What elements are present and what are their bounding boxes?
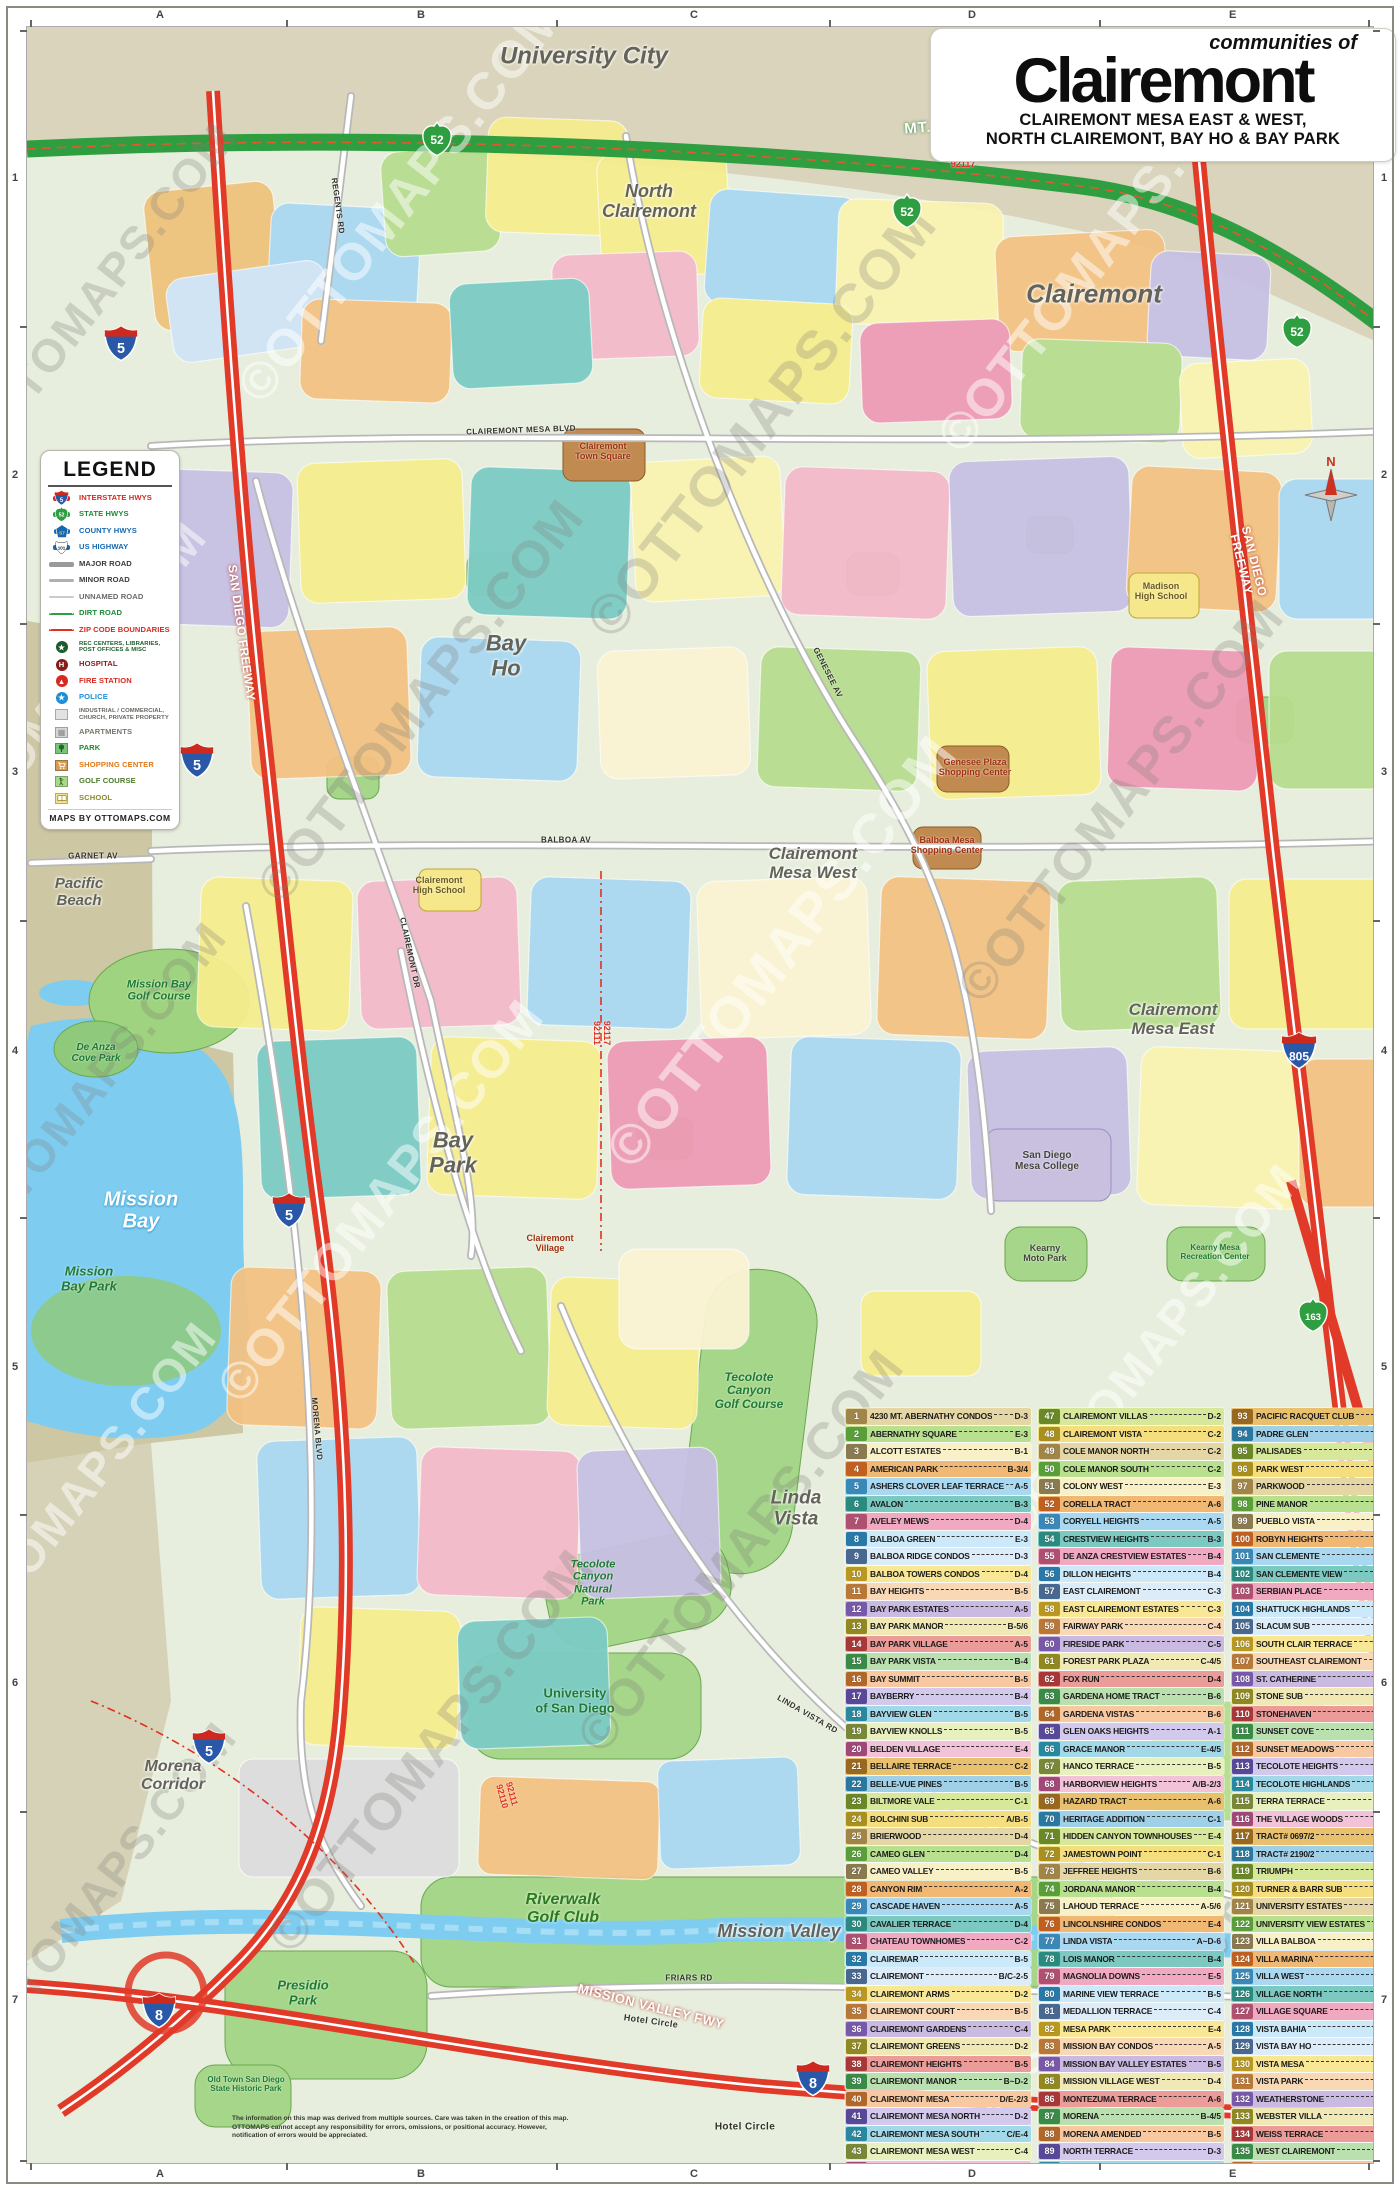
index-entry-number: 2 [846, 1427, 867, 1442]
index-entry-name: FOX RUN [1063, 1674, 1099, 1684]
index-entry-number: 22 [846, 1777, 867, 1792]
grid-number-right: 5 [1381, 1361, 1387, 1373]
index-entry-number: 110 [1232, 1707, 1253, 1722]
index-entry-number: 34 [846, 1987, 867, 2002]
grid-tick [1373, 1811, 1380, 1813]
index-row: 96PARK WESTB-1 [1231, 1461, 1374, 1478]
index-entry-name: CLAIREMONT MESA SOUTH [870, 2129, 979, 2139]
grid-letter-bottom: B [417, 2168, 425, 2180]
index-entry-name: CLAIREMONT MESA NORTH [870, 2111, 980, 2121]
index-leader-dots [952, 1991, 1013, 1992]
index-entry-number: 48 [1039, 1427, 1060, 1442]
index-entry-name: MISSION BAY VALLEY ESTATES [1063, 2059, 1187, 2069]
index-entry-gridref: A/B-5 [1006, 1814, 1028, 1824]
index-row: 62FOX RUND-4 [1038, 1671, 1224, 1688]
grid-number-right: 6 [1381, 1677, 1387, 1689]
index-leader-dots [1325, 2131, 1374, 2132]
index-entry-number: 133 [1232, 2109, 1253, 2124]
index-row: 22BELLE-VUE PINESB-5 [845, 1776, 1031, 1793]
index-row: 117TRACT# 0697/2B-5 [1231, 1828, 1374, 1845]
index-entry-number: 107 [1232, 1654, 1253, 1669]
index-entry-name: GLEN OAKS HEIGHTS [1063, 1726, 1149, 1736]
index-entry-name: CANYON RIM [870, 1884, 922, 1894]
index-leader-dots [923, 1834, 1012, 1835]
index-entry-number: 59 [1039, 1619, 1060, 1634]
grid-tick [1099, 20, 1101, 27]
index-leader-dots [1312, 1624, 1374, 1625]
legend-item-label: APARTMENTS [79, 728, 132, 737]
index-entry-gridref: B-5 [1015, 1674, 1029, 1684]
grid-tick [1373, 920, 1380, 922]
index-row: 101SAN CLEMENTEC-1 [1231, 1548, 1374, 1565]
index-entry-gridref: C-3 [1208, 1604, 1222, 1614]
grid-tick [1368, 2163, 1370, 2170]
index-entry-name: GRACE MANOR [1063, 1744, 1125, 1754]
index-entry-name: CAMEO VALLEY [870, 1866, 934, 1876]
index-row: 76LINCOLNSHIRE CONDOSE-4 [1038, 1916, 1224, 1933]
index-entry-number: 70 [1039, 1812, 1060, 1827]
index-row: 106SOUTH CLAIR TERRACEC-5 [1231, 1636, 1374, 1653]
state-icon: 52 [48, 512, 75, 517]
index-leader-dots [1162, 2079, 1206, 2080]
index-entry-gridref: D-4 [1015, 1849, 1029, 1859]
index-entry-number: 125 [1232, 1969, 1253, 1984]
index-leader-dots [1295, 1869, 1374, 1870]
index-leader-dots [1114, 1939, 1194, 1940]
grid-tick [30, 20, 32, 27]
index-leader-dots [943, 1449, 1013, 1450]
index-leader-dots [968, 2026, 1012, 2027]
index-leader-dots [951, 2096, 997, 2097]
index-entry-gridref: A-6 [1208, 2094, 1222, 2104]
index-row: 132WEATHERSTONEC-4 [1231, 2091, 1374, 2108]
legend-footer: MAPS BY OTTOMAPS.COM [48, 809, 172, 823]
index-entry-name: VISTA BAY HO [1256, 2041, 1311, 2051]
index-entry-name: COLE MANOR SOUTH [1063, 1464, 1149, 1474]
index-leader-dots [1127, 1746, 1199, 1747]
index-entry-gridref: A-5 [1015, 1639, 1029, 1649]
index-entry-name: PADRE GLEN [1256, 1429, 1308, 1439]
index-row: 99PUEBLO VISTAE-5 [1231, 1513, 1374, 1530]
index-leader-dots [1113, 2026, 1206, 2027]
index-entry-number: 43 [846, 2144, 867, 2159]
index-leader-dots [1306, 1466, 1374, 1467]
index-leader-dots [1315, 1956, 1374, 1957]
index-entry-number: 60 [1039, 1637, 1060, 1652]
legend-item-label: MINOR ROAD [79, 576, 130, 585]
index-row: 111SUNSET COVEC-4 [1231, 1723, 1374, 1740]
index-entry-name: FOREST PARK PLAZA [1063, 1656, 1149, 1666]
index-entry-number: 57 [1039, 1584, 1060, 1599]
index-leader-dots [1324, 1589, 1374, 1590]
index-leader-dots [1322, 1554, 1374, 1555]
index-entry-name: CORYELL HEIGHTS [1063, 1516, 1139, 1526]
index-row: 14230 MT. ABERNATHY CONDOSD-3 [845, 1408, 1031, 1425]
index-leader-dots [1318, 1939, 1374, 1940]
index-leader-dots [1163, 1921, 1206, 1922]
index-entry-number: 29 [846, 1899, 867, 1914]
index-leader-dots [938, 1659, 1013, 1660]
index-entry-gridref: C-4 [1208, 1621, 1222, 1631]
index-entry-name: TECOLOTE HEIGHTS [1256, 1761, 1338, 1771]
index-entry-gridref: B-5 [1208, 2129, 1222, 2139]
index-leader-dots [1143, 1589, 1206, 1590]
index-entry-gridref: A-6 [1208, 1499, 1222, 1509]
index-entry-name: HERITAGE ADDITION [1063, 1814, 1145, 1824]
grid-tick [829, 20, 831, 27]
index-entry-name: JAMESTOWN POINT [1063, 1849, 1142, 1859]
index-leader-dots [967, 1939, 1012, 1940]
index-entry-name: HAZARD TRACT [1063, 1796, 1127, 1806]
index-leader-dots [1136, 1711, 1205, 1712]
index-leader-dots [1117, 1956, 1206, 1957]
index-entry-gridref: E-4 [1208, 2024, 1221, 2034]
svg-text:S7: S7 [59, 530, 65, 535]
index-entry-name: SUNSET COVE [1256, 1726, 1314, 1736]
index-leader-dots [1144, 1851, 1205, 1852]
index-entry-gridref: B-5 [1015, 1726, 1029, 1736]
index-leader-dots [1305, 1694, 1374, 1695]
legend-item-label: INDUSTRIAL / COMMERCIAL, CHURCH, PRIVATE… [79, 708, 169, 722]
index-entry-name: BAYVIEW GLEN [870, 1709, 932, 1719]
index-entry-number: 66 [1039, 1742, 1060, 1757]
legend-item-minor: MINOR ROAD [48, 575, 172, 587]
index-entry-name: TURNER & BARR SUB [1256, 1884, 1342, 1894]
legend-item-label: DIRT ROAD [79, 609, 122, 618]
index-entry-name: SHATTUCK HIGHLANDS [1256, 1604, 1350, 1614]
index-entry-name: VILLAGE NORTH [1256, 1989, 1322, 1999]
legend-item-school: SCHOOL [48, 792, 172, 804]
index-entry-name: NORTH TERRACE [1063, 2146, 1133, 2156]
index-entry-number: 36 [846, 2022, 867, 2037]
index-row: 44CLAIREMONT PARKC-4 [845, 2161, 1031, 2165]
index-entry-gridref: A-5/6 [1201, 1901, 1221, 1911]
index-row: 65GLEN OAKS HEIGHTSA-1 [1038, 1723, 1224, 1740]
index-entry-gridref: D-4 [1015, 1919, 1029, 1929]
index-entry-gridref: D-2 [1208, 1411, 1222, 1421]
index-entry-number: 116 [1232, 1812, 1253, 1827]
index-row: 33CLAIREMONTB/C-2-5 [845, 1968, 1031, 1985]
index-row: 14BAY PARK VILLAGEA-5 [845, 1636, 1031, 1653]
index-entry-name: VILLA WEST [1256, 1971, 1304, 1981]
index-leader-dots [1352, 1781, 1374, 1782]
index-entry-number: 93 [1232, 1409, 1253, 1424]
index-entry-name: WEISS TERRACE [1256, 2129, 1323, 2139]
index-entry-gridref: B-1 [1015, 1446, 1029, 1456]
index-entry-name: LINCOLNSHIRE CONDOS [1063, 1919, 1161, 1929]
index-entry-number: 130 [1232, 2057, 1253, 2072]
index-entry-number: 112 [1232, 1742, 1253, 1757]
index-entry-name: ALCOTT ESTATES [870, 1446, 941, 1456]
index-entry-name: VISTA BAHIA [1256, 2024, 1306, 2034]
index-entry-name: PACIFIC RACQUET CLUB [1256, 1411, 1354, 1421]
index-leader-dots [926, 1974, 997, 1975]
index-entry-number: 55 [1039, 1549, 1060, 1564]
index-row: 122UNIVERSITY VIEW ESTATESE-2 [1231, 1916, 1374, 1933]
index-row: 73JEFFREE HEIGHTSB-6 [1038, 1863, 1224, 1880]
index-entry-number: 5 [846, 1479, 867, 1494]
index-row: 52CORELLA TRACTA-6 [1038, 1496, 1224, 1513]
index-entry-number: 129 [1232, 2039, 1253, 2054]
index-entry-name: PALISADES [1256, 1446, 1302, 1456]
index-entry-number: 39 [846, 2074, 867, 2089]
index-row: 74JORDANA MANORB-4 [1038, 1881, 1224, 1898]
index-entry-name: CLAIREMAR [870, 1954, 918, 1964]
index-entry-gridref: D-2 [1015, 2111, 1029, 2121]
index-entry-number: 52 [1039, 1497, 1060, 1512]
index-row: 5ASHERS CLOVER LEAF TERRACEA-5 [845, 1478, 1031, 1495]
grid-letter-bottom: A [156, 2168, 164, 2180]
index-entry-gridref: B-5 [1208, 2059, 1222, 2069]
index-entry-name: MESA PARK [1063, 2024, 1111, 2034]
legend-item-label: REC CENTERS, LIBRARIES, POST OFFICES & M… [79, 641, 160, 655]
index-row: 71HIDDEN CANYON TOWNHOUSESE-4 [1038, 1828, 1224, 1845]
index-row: 68HARBORVIEW HEIGHTSA/B-2/3 [1038, 1776, 1224, 1793]
index-entry-number: 7 [846, 1514, 867, 1529]
index-entry-number: 33 [846, 1969, 867, 1984]
index-entry-name: GARDENA HOME TRACT [1063, 1691, 1160, 1701]
index-leader-dots [953, 1764, 1012, 1765]
index-leader-dots [1159, 2096, 1206, 2097]
index-row: 37CLAIREMONT GREENSD-2 [845, 2038, 1031, 2055]
index-row: 15BAY PARK VISTAB-4 [845, 1653, 1031, 1670]
index-leader-dots [1326, 2096, 1374, 2097]
grid-number-left: 3 [12, 766, 18, 778]
index-entry-gridref: D/E-2/3 [1000, 2094, 1028, 2104]
index-entry-name: 4230 MT. ABERNATHY CONDOS [870, 1411, 992, 1421]
grid-tick [1373, 623, 1380, 625]
minor-road-icon [48, 579, 75, 582]
grid-number-left: 6 [12, 1677, 18, 1689]
index-entry-name: CLAIREMONT [870, 1971, 924, 1981]
index-entry-gridref: D-4 [1015, 1831, 1029, 1841]
index-entry-number: 104 [1232, 1602, 1253, 1617]
index-row: 11BAY HEIGHTSB-5 [845, 1583, 1031, 1600]
index-entry-name: MORENA AMENDED [1063, 2129, 1141, 2139]
index-row: 125VILLA WESTE-3 [1231, 1968, 1374, 1985]
index-entry-number: 105 [1232, 1619, 1253, 1634]
index-entry-name: MARINE VIEW TERRACE [1063, 1989, 1159, 1999]
index-entry-number: 127 [1232, 2004, 1253, 2019]
index-entry-gridref: D-2 [1015, 2041, 1029, 2051]
index-entry-name: BAYVIEW KNOLLS [870, 1726, 942, 1736]
index-entry-gridref: B-4 [1208, 1569, 1222, 1579]
grid-number-left: 4 [12, 1045, 18, 1057]
index-leader-dots [942, 1904, 1013, 1905]
index-row: 38CLAIREMONT HEIGHTSB-5 [845, 2056, 1031, 2073]
index-entry-gridref: E-4 [1015, 1744, 1028, 1754]
index-leader-dots [1161, 1991, 1206, 1992]
grid-letter-top: B [417, 9, 425, 21]
grid-letter-bottom: D [968, 2168, 976, 2180]
index-entry-number: 118 [1232, 1847, 1253, 1862]
index-entry-number: 56 [1039, 1567, 1060, 1582]
index-row: 93PACIFIC RACQUET CLUBB-3 [1231, 1408, 1374, 1425]
index-leader-dots [1324, 1991, 1374, 1992]
index-row: 84MISSION BAY VALLEY ESTATESB-5 [1038, 2056, 1224, 2073]
grid-tick [556, 20, 558, 27]
index-row: 136WESTERN HILLSB-5 [1231, 2161, 1374, 2165]
index-leader-dots [1367, 1921, 1374, 1922]
industrial-icon [48, 709, 75, 720]
index-entry-name: CLAIREMONT GARDENS [870, 2024, 966, 2034]
index-entry-name: CLAIREMONT MESA WEST [870, 2146, 975, 2156]
grid-letter-top: C [690, 9, 698, 21]
index-row: 77LINDA VISTAA~D-6 [1038, 1933, 1224, 1950]
neighborhood-index-table: 14230 MT. ABERNATHY CONDOSD-32ABERNATHY … [845, 1408, 1374, 2164]
index-leader-dots [1006, 1484, 1013, 1485]
index-entry-name: WEST CLAIREMONT [1256, 2146, 1335, 2156]
us-icon: 101 [48, 545, 75, 550]
index-entry-gridref: B-4 [1015, 1656, 1029, 1666]
index-leader-dots [1129, 1799, 1206, 1800]
index-entry-number: 117 [1232, 1829, 1253, 1844]
index-row: 39CLAIREMONT MANORB~D-2 [845, 2073, 1031, 2090]
index-entry-number: 82 [1039, 2022, 1060, 2037]
index-row: 108ST. CATHERINED-3 [1231, 1671, 1374, 1688]
index-entry-number: 94 [1232, 1427, 1253, 1442]
school-icon [48, 793, 75, 804]
legend-title: LEGEND [48, 458, 172, 487]
index-entry-number: 10 [846, 1567, 867, 1582]
index-row: 105SLACUM SUBB-5 [1231, 1618, 1374, 1635]
index-row: 133WEBSTER VILLAB-4 [1231, 2108, 1374, 2125]
index-entry-name: CLAIREMONT GREENS [870, 2041, 960, 2051]
grid-tick [20, 1811, 27, 1813]
index-entry-number: 122 [1232, 1917, 1253, 1932]
index-row: 2ABERNATHY SQUAREE-3 [845, 1426, 1031, 1443]
index-entry-name: BALBOA TOWERS CONDOS [870, 1569, 980, 1579]
title-block: communities of Clairemont CLAIREMONT MES… [930, 28, 1396, 162]
grid-tick [20, 1217, 27, 1219]
index-entry-name: UNIVERSITY ESTATES [1256, 1901, 1342, 1911]
index-entry-name: COLONY WEST [1063, 1481, 1123, 1491]
grid-number-right: 3 [1381, 766, 1387, 778]
index-entry-gridref: C-4 [1208, 2006, 1222, 2016]
index-row: 113TECOLOTE HEIGHTSC-6 [1231, 1758, 1374, 1775]
index-entry-name: CASCADE HAVEN [870, 1901, 940, 1911]
index-entry-number: 24 [846, 1812, 867, 1827]
index-row: 3ALCOTT ESTATESB-1 [845, 1443, 1031, 1460]
index-entry-number: 84 [1039, 2057, 1060, 2072]
index-entry-name: PARKWOOD [1256, 1481, 1305, 1491]
index-row: 42CLAIREMONT MESA SOUTHC/E-4 [845, 2126, 1031, 2143]
index-row: 50COLE MANOR SOUTHC-2 [1038, 1461, 1224, 1478]
index-row: 123VILLA BALBOAE-3 [1231, 1933, 1374, 1950]
index-entry-name: CORELLA TRACT [1063, 1499, 1131, 1509]
index-row: 85MISSION VILLAGE WESTD-4 [1038, 2073, 1224, 2090]
index-entry-gridref: E-4 [1208, 1831, 1221, 1841]
index-leader-dots [937, 1536, 1013, 1537]
legend-item-label: US HIGHWAY [79, 543, 128, 552]
index-entry-name: ASHERS CLOVER LEAF TERRACE [870, 1481, 1004, 1491]
index-row: 24BOLCHINI SUBA/B-5 [845, 1811, 1031, 1828]
index-entry-gridref: A/B-2/3 [1192, 1779, 1221, 1789]
golf-icon [48, 776, 75, 787]
index-row: 81MEDALLION TERRACEC-4 [1038, 2003, 1224, 2020]
index-leader-dots [920, 1956, 1012, 1957]
index-row: 88MORENA AMENDEDB-5 [1038, 2126, 1224, 2143]
grid-tick [1373, 30, 1380, 32]
index-entry-name: CLAIREMONT COURT [870, 2006, 955, 2016]
index-entry-number: 40 [846, 2092, 867, 2107]
index-entry-name: TRACT# 2190/2 [1256, 1849, 1314, 1859]
index-entry-gridref: D-3 [1015, 1411, 1029, 1421]
index-row: 97PARKWOODC-3 [1231, 1478, 1374, 1495]
map-canvas: N ©OTTOMAPS.COM©OTTOMAPS.COM©OTTOMAPS.CO… [26, 26, 1374, 2164]
index-leader-dots [994, 1414, 1012, 1415]
grid-tick [1373, 1217, 1380, 1219]
index-row: 94PADRE GLENB-4 [1231, 1426, 1374, 1443]
index-entry-name: CLAIREMONT VILLAS [1063, 1411, 1148, 1421]
index-row: 82MESA PARKE-4 [1038, 2021, 1224, 2038]
index-entry-number: 30 [846, 1917, 867, 1932]
index-leader-dots [1133, 1571, 1206, 1572]
index-leader-dots [1317, 1519, 1374, 1520]
shopping-icon [48, 760, 75, 771]
index-entry-number: 98 [1232, 1497, 1253, 1512]
index-row: 121UNIVERSITY ESTATESB-6 [1231, 1898, 1374, 1915]
grid-tick [20, 326, 27, 328]
legend-item-label: ZIP CODE BOUNDARIES [79, 626, 170, 635]
index-entry-number: 47 [1039, 1409, 1060, 1424]
index-entry-gridref: B-5 [1015, 2006, 1029, 2016]
index-leader-dots [981, 2131, 1004, 2132]
index-entry-name: WEATHERSTONE [1256, 2094, 1324, 2104]
index-column: 14230 MT. ABERNATHY CONDOSD-32ABERNATHY … [845, 1408, 1031, 2164]
index-leader-dots [922, 1676, 1012, 1677]
index-entry-gridref: D-3 [1015, 1551, 1029, 1561]
index-leader-dots [1142, 1974, 1206, 1975]
index-leader-dots [1141, 1519, 1205, 1520]
index-row: 47CLAIREMONT VILLASD-2 [1038, 1408, 1224, 1425]
index-entry-gridref: A-5 [1015, 1901, 1029, 1911]
index-entry-name: CRESTVIEW HEIGHTS [1063, 1534, 1149, 1544]
index-entry-gridref: E-4/5 [1201, 1744, 1221, 1754]
legend-item-state: 52 STATE HWYS [48, 509, 172, 521]
index-entry-number: 19 [846, 1724, 867, 1739]
grid-letter-top: E [1229, 9, 1236, 21]
index-entry-number: 124 [1232, 1952, 1253, 1967]
hospital-icon: H [48, 659, 75, 671]
index-entry-name: WEBSTER VILLA [1256, 2111, 1322, 2121]
apartments-icon: ▦ [48, 727, 75, 738]
index-entry-gridref: C-5 [1208, 1639, 1222, 1649]
grid-tick [1373, 326, 1380, 328]
index-leader-dots [1364, 1659, 1374, 1660]
index-row: 10BALBOA TOWERS CONDOSD-4 [845, 1566, 1031, 1583]
index-entry-name: PINE MANOR [1256, 1499, 1308, 1509]
index-leader-dots [1137, 1886, 1205, 1887]
index-leader-dots [1304, 1449, 1374, 1450]
index-row: 86MONTEZUMA TERRACEA-6 [1038, 2091, 1224, 2108]
index-entry-number: 27 [846, 1864, 867, 1879]
index-leader-dots [1181, 1606, 1206, 1607]
fire-icon: ▲ [48, 675, 75, 687]
index-row: 107SOUTHEAST CLAIREMONTD-4 [1231, 1653, 1374, 1670]
index-row: 27CAMEO VALLEYB-5 [845, 1863, 1031, 1880]
index-entry-gridref: C-4/5 [1201, 1656, 1221, 1666]
index-entry-gridref: C-1 [1015, 1796, 1029, 1806]
legend-item-label: MAJOR ROAD [79, 560, 132, 569]
index-entry-number: 96 [1232, 1462, 1253, 1477]
grid-tick [286, 2163, 288, 2170]
index-entry-number: 79 [1039, 1969, 1060, 1984]
index-row: 40CLAIREMONT MESAD/E-2/3 [845, 2091, 1031, 2108]
index-entry-gridref: E-3 [1015, 1429, 1028, 1439]
legend-item-industrial: INDUSTRIAL / COMMERCIAL, CHURCH, PRIVATE… [48, 708, 172, 722]
index-entry-name: FIRESIDE PARK [1063, 1639, 1124, 1649]
